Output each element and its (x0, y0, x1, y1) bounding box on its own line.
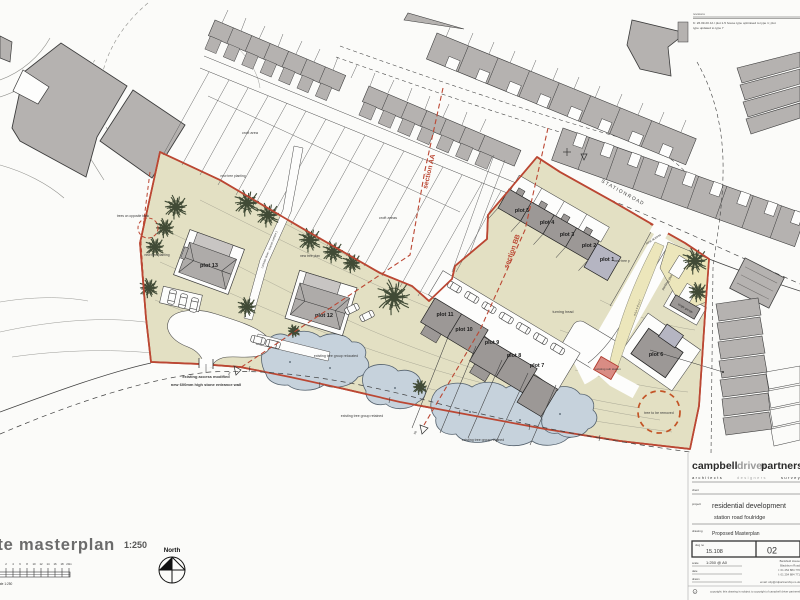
svg-text:plot 8: plot 8 (507, 353, 521, 359)
svg-text:plot 5: plot 5 (515, 208, 529, 214)
svg-text:1:250 @ A0: 1:250 @ A0 (706, 560, 728, 565)
svg-text:type updated to type 7: type updated to type 7 (693, 26, 724, 30)
svg-text:14: 14 (46, 562, 50, 566)
svg-text:20m: 20m (66, 562, 72, 566)
svg-text:date: date (692, 569, 698, 573)
svg-text:Bankfield House: Bankfield House (780, 559, 800, 563)
svg-text:12: 12 (39, 562, 43, 566)
svg-text:new 600mm high stone entrance: new 600mm high stone entrance wall (171, 382, 241, 387)
svg-text:campbell: campbell (692, 460, 738, 472)
svg-text:plot 6: plot 6 (649, 352, 663, 358)
svg-text:plot 4: plot 4 (540, 220, 554, 226)
svg-text:copyright: this drawing is sub: copyright: this drawing is subject to co… (710, 590, 800, 594)
svg-text:plot 13: plot 13 (200, 263, 218, 269)
svg-text:North: North (164, 547, 181, 554)
svg-text:t: 01 254 884 770: t: 01 254 884 770 (778, 568, 800, 572)
svg-text:1:250: 1:250 (124, 540, 147, 550)
svg-text:15.108: 15.108 (706, 549, 723, 555)
svg-text:10: 10 (32, 562, 36, 566)
svg-text:tree to be removed: tree to be removed (644, 411, 673, 415)
svg-text:existing tree group relocated: existing tree group relocated (314, 354, 358, 358)
svg-text:trees on opposite bank: trees on opposite bank (117, 214, 150, 218)
svg-text:drawn: drawn (692, 577, 700, 581)
svg-text:station road foulridge: station road foulridge (714, 515, 765, 521)
svg-text:new tree planting: new tree planting (220, 174, 245, 178)
svg-text:revisions: revisions (693, 12, 705, 16)
svg-text:18: 18 (60, 562, 64, 566)
svg-text:existing sub station: existing sub station (595, 367, 621, 371)
svg-text:designers: designers (737, 475, 767, 480)
svg-text:existing tree group retained: existing tree group retained (341, 414, 383, 418)
svg-text:02: 02 (767, 546, 777, 556)
svg-text:16: 16 (53, 562, 57, 566)
svg-text:architects: architects (692, 475, 723, 480)
svg-text:plot 7: plot 7 (530, 363, 544, 369)
svg-text:scale 1:250: scale 1:250 (0, 582, 13, 586)
svg-text:turning head: turning head (552, 310, 573, 314)
svg-text:surveyors: surveyors (781, 475, 800, 480)
svg-text:plot 10: plot 10 (455, 327, 472, 333)
svg-text:residential development: residential development (712, 503, 786, 510)
svg-text:croft areas: croft areas (379, 216, 397, 220)
svg-text:project: project (692, 502, 701, 506)
svg-text:new tree p: new tree p (614, 259, 630, 263)
svg-text:existing tree group retained: existing tree group retained (462, 438, 504, 442)
svg-text:plot 11: plot 11 (436, 312, 453, 318)
svg-text:Proposed Masterplan: Proposed Masterplan (712, 531, 760, 537)
svg-text:croft area: croft area (242, 131, 259, 135)
svg-text:f: 01 254 884 771: f: 01 254 884 771 (778, 573, 800, 577)
svg-text:plot 1: plot 1 (600, 257, 614, 263)
svg-text:scale: scale (692, 561, 699, 565)
svg-text:Blackburn Road: Blackburn Road (780, 564, 800, 568)
svg-text:plot 3: plot 3 (560, 232, 574, 238)
svg-text:email: cdp@cdpartnership.co.uk: email: cdp@cdpartnership.co.uk (760, 580, 800, 584)
svg-text:partnership: partnership (761, 460, 800, 472)
svg-text:client: client (692, 488, 699, 492)
svg-text:plot 2: plot 2 (582, 243, 596, 249)
svg-text:new tree planting: new tree planting (144, 253, 169, 257)
svg-text:K: 26.09.20 JA / plot 1-5 h: K: 26.09.20 JA / plot 1-5 house type opt… (693, 21, 776, 25)
svg-text:site masterplan: site masterplan (0, 536, 115, 554)
svg-text:dwg no: dwg no (695, 543, 704, 547)
svg-text:drawing: drawing (692, 529, 703, 533)
svg-text:new tree plan: new tree plan (300, 254, 320, 258)
svg-text:plot 9: plot 9 (485, 340, 499, 346)
